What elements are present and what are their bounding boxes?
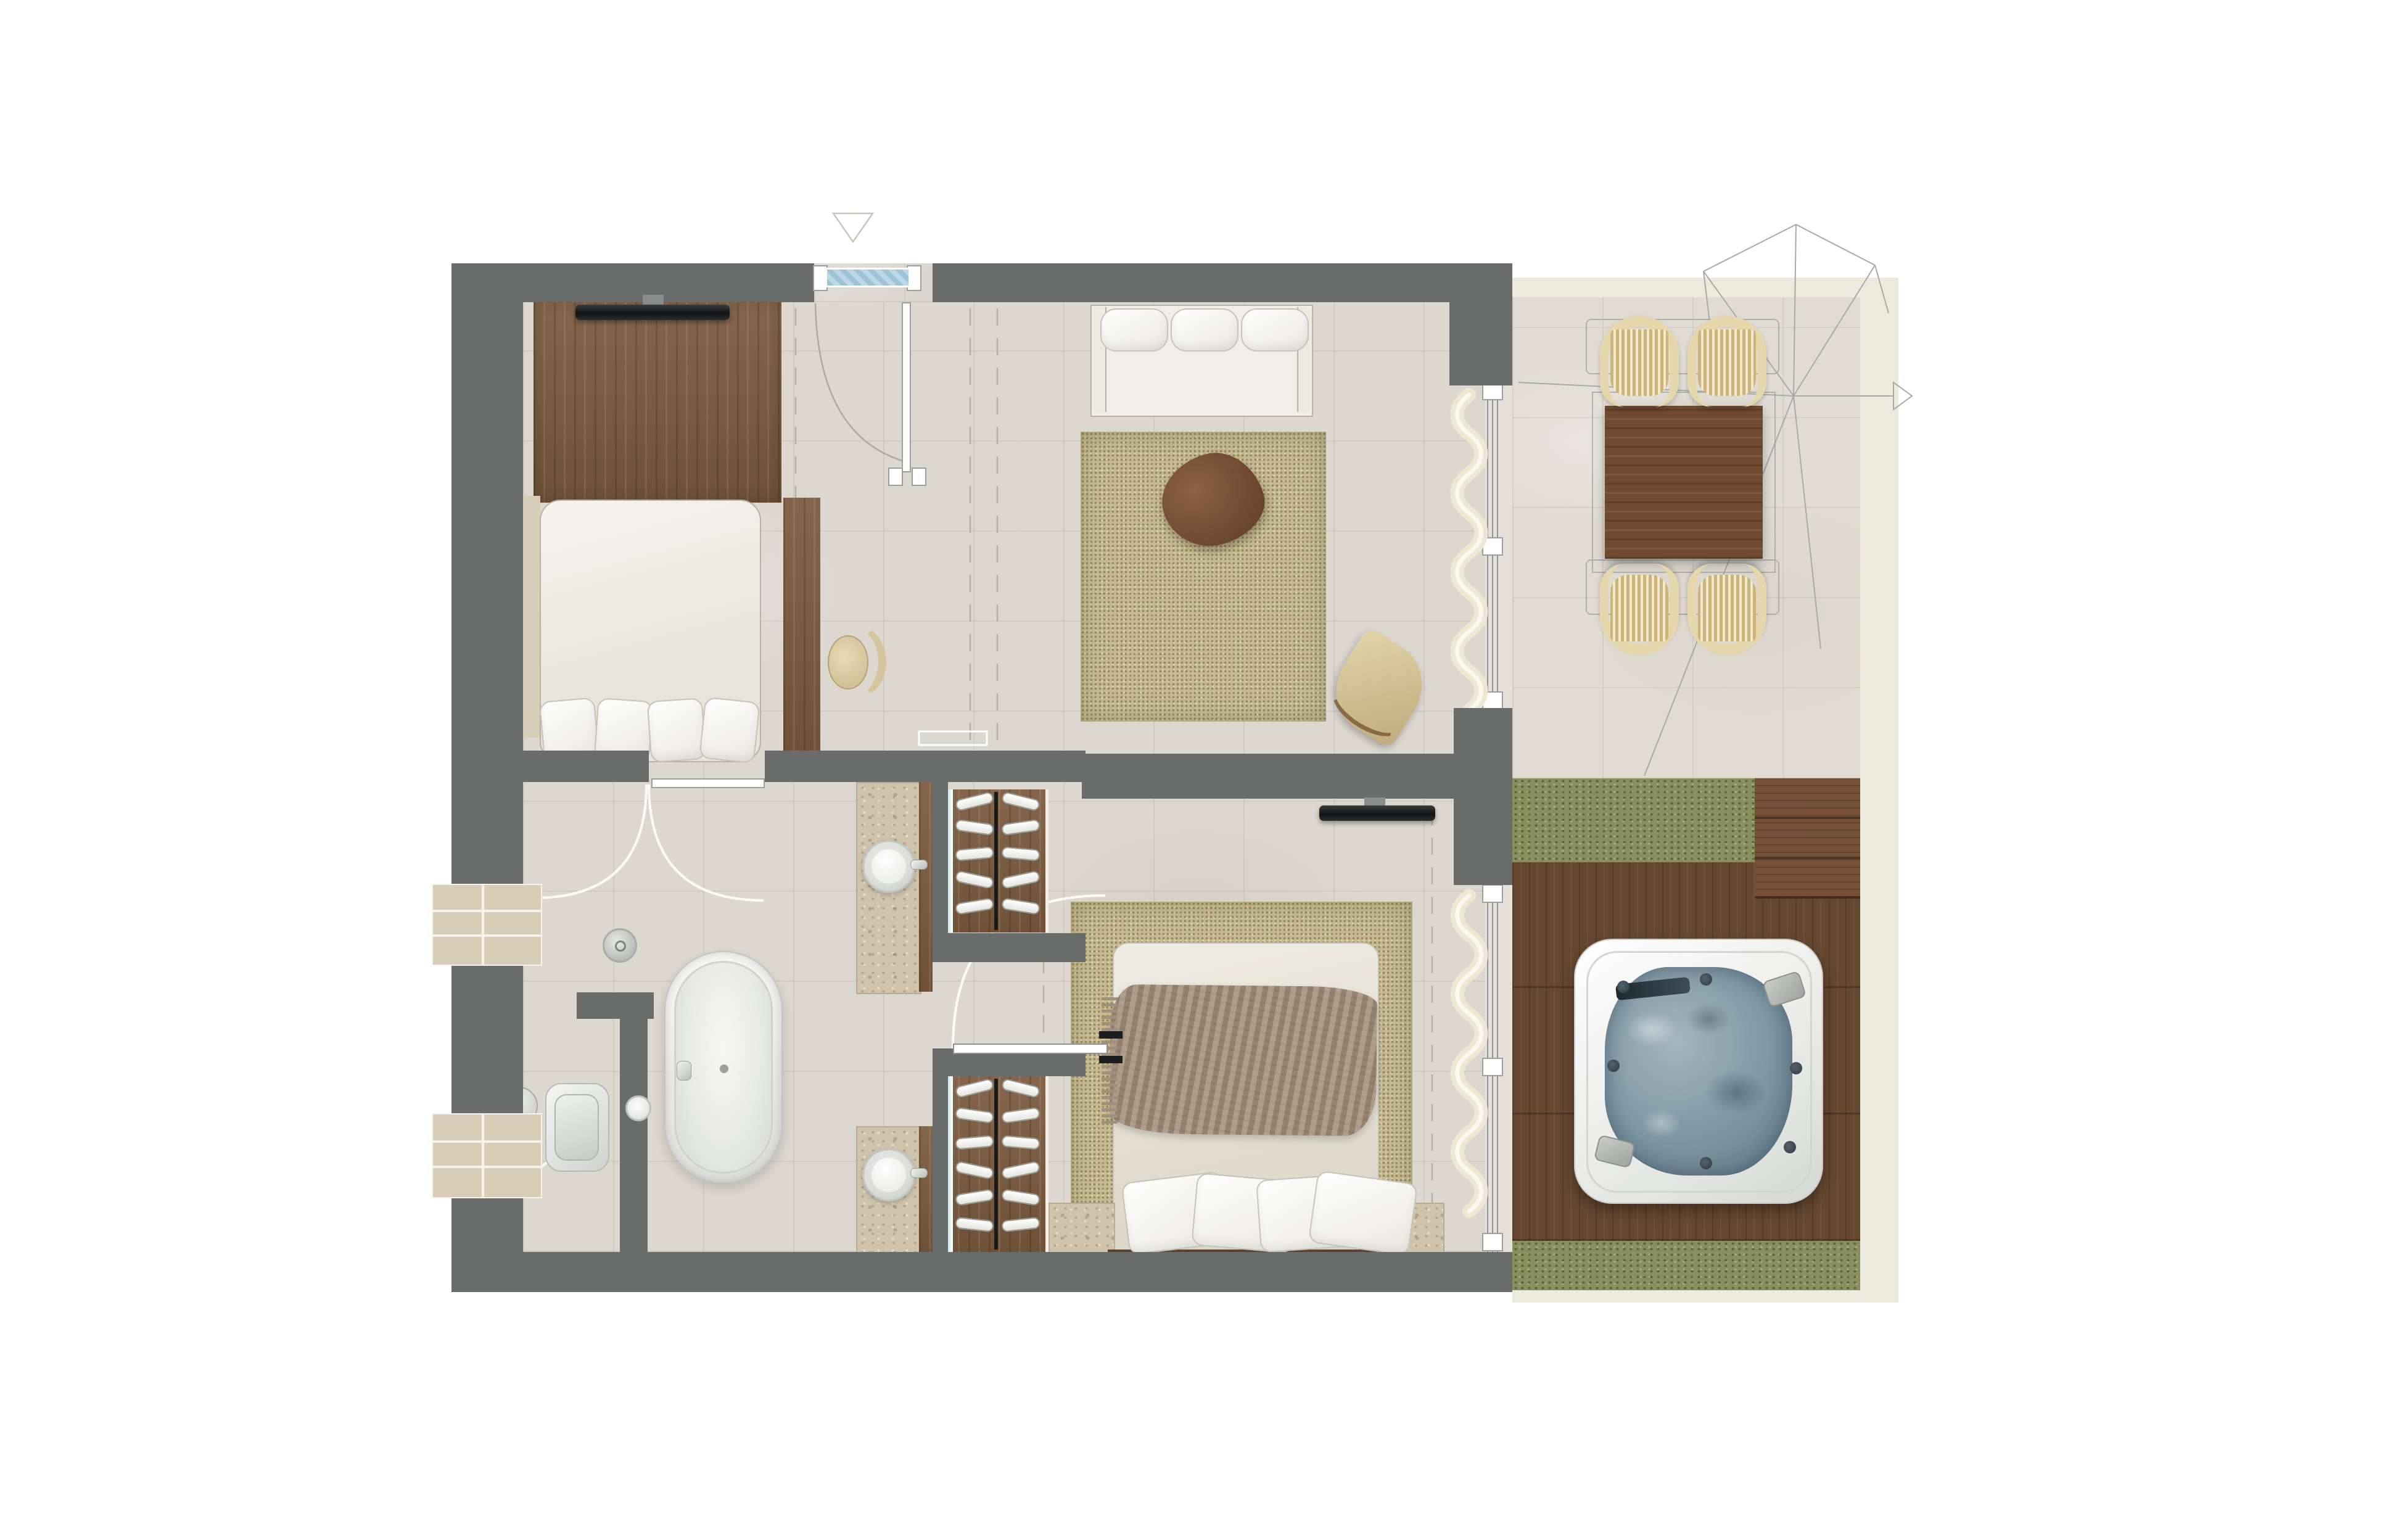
entry-door-glass	[825, 268, 910, 287]
bed2-pillow	[1308, 1170, 1419, 1256]
desk-chair	[822, 624, 886, 699]
tv-bar-bedroom1	[575, 305, 730, 320]
wall-wc-horizontal	[577, 992, 654, 1019]
curtain-bedroom	[1457, 896, 1481, 1211]
wall-top-right	[933, 263, 1449, 302]
wicker-chair-seat	[1610, 329, 1668, 396]
wall-hung-toilet	[545, 1083, 609, 1172]
closet-2	[948, 1076, 1049, 1252]
wall-vanity-side-2	[933, 1076, 948, 1252]
bed1-pillow	[699, 697, 760, 764]
shower-drain-hole	[615, 941, 626, 952]
closet-1	[948, 789, 1049, 933]
hot-tub-jet	[1700, 973, 1712, 986]
closet-glass-front	[948, 789, 953, 933]
wall-vanity-side-1	[933, 782, 948, 933]
tv-bar-bedroom2	[1319, 805, 1435, 821]
freestanding-bathtub	[664, 951, 783, 1184]
desk-chair-seat	[828, 635, 868, 690]
vanity-faucet-1	[910, 860, 928, 870]
floor-plan-canvas	[0, 0, 2398, 1540]
bathtub-faucet	[677, 1061, 691, 1081]
bed1-pillow	[647, 698, 707, 763]
wall-bath-north-east	[765, 751, 1086, 782]
wall-bedroom-divider	[1082, 754, 1454, 799]
sofa-cushion	[1241, 308, 1309, 352]
bedroom-door-hinge-b	[1099, 1056, 1123, 1063]
closet-rod	[994, 792, 998, 930]
vanity-wood-edge-1	[919, 782, 933, 992]
vanity-wood-edge-2	[919, 1126, 933, 1252]
hot-tub-jet	[1617, 981, 1630, 993]
frosted-window-1	[432, 884, 542, 966]
hot-tub-jet	[1607, 1060, 1620, 1072]
vanity-basin-1	[862, 840, 915, 893]
wicker-chair	[1600, 564, 1679, 655]
wall-bottom	[451, 1252, 1512, 1292]
wall-bath-north-west	[523, 751, 649, 782]
sofa-cushion	[1100, 308, 1168, 352]
frosted-window-2	[432, 1113, 542, 1198]
hot-tub-jet	[1784, 1141, 1796, 1153]
closet-glass-front	[948, 1076, 953, 1252]
wall-top-left	[451, 263, 814, 302]
throw-blanket	[1110, 984, 1378, 1137]
hot-tub-jet	[1790, 1062, 1802, 1074]
entry-door-leaf	[902, 302, 911, 472]
bedroom-door-hinge-a	[1099, 1031, 1123, 1039]
closet-back-line	[1045, 789, 1049, 933]
wall-ne-corner	[1449, 263, 1512, 385]
entry-direction-triangle	[833, 213, 873, 242]
wicker-chair	[1687, 316, 1766, 407]
wicker-chair	[1687, 564, 1766, 655]
entry-door-handle-b	[912, 467, 926, 486]
sofa-cushion	[1171, 308, 1238, 352]
wall-wc-vertical	[620, 1019, 648, 1252]
wicker-chair-seat	[1610, 575, 1668, 641]
bath-door-leaf	[651, 778, 765, 788]
hot-tub-jet	[1700, 1157, 1712, 1169]
wall-east-mid	[1454, 708, 1512, 885]
closet-rod	[994, 1079, 998, 1250]
vanity-basin-2	[862, 1148, 915, 1201]
entry-door-handle-a	[888, 467, 903, 486]
wall-closet-north	[933, 933, 1086, 962]
threshold-line	[919, 731, 987, 745]
curtain-living	[1457, 395, 1481, 710]
wicker-chair-seat	[1698, 329, 1756, 396]
bedroom-door-leaf	[953, 1044, 1108, 1054]
closet-back-line	[1045, 1076, 1049, 1252]
nightstand-left	[1049, 1203, 1115, 1259]
flush-plate	[625, 1095, 651, 1121]
bathtub-drain	[720, 1064, 728, 1073]
wicker-chair-seat	[1698, 575, 1756, 641]
vanity-faucet-2	[910, 1168, 928, 1178]
wicker-chair	[1600, 316, 1679, 407]
dining-table	[1605, 406, 1763, 559]
shower-drain	[603, 928, 637, 963]
wardrobe	[534, 300, 781, 503]
desk	[783, 498, 820, 760]
toilet-bowl	[554, 1094, 599, 1161]
